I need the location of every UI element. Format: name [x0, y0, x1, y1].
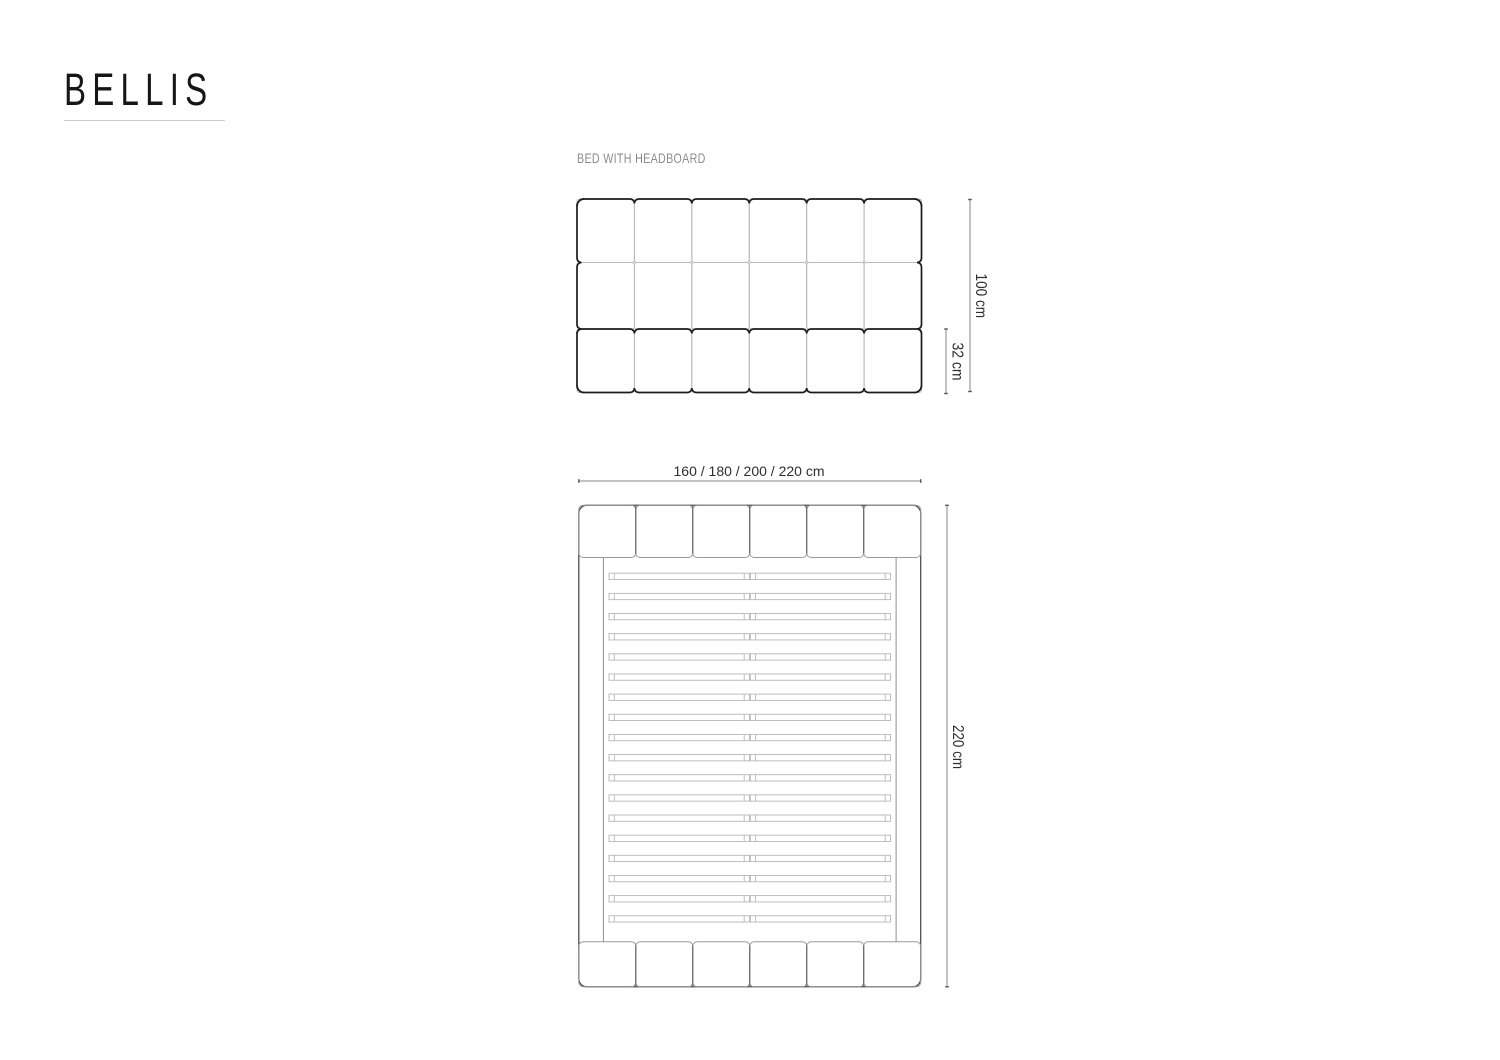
svg-text:160 / 180 / 200 / 220 cm: 160 / 180 / 200 / 220 cm — [674, 463, 825, 479]
svg-text:220 cm: 220 cm — [949, 725, 966, 769]
svg-text:100 cm: 100 cm — [972, 274, 989, 318]
svg-text:32 cm: 32 cm — [948, 342, 965, 380]
